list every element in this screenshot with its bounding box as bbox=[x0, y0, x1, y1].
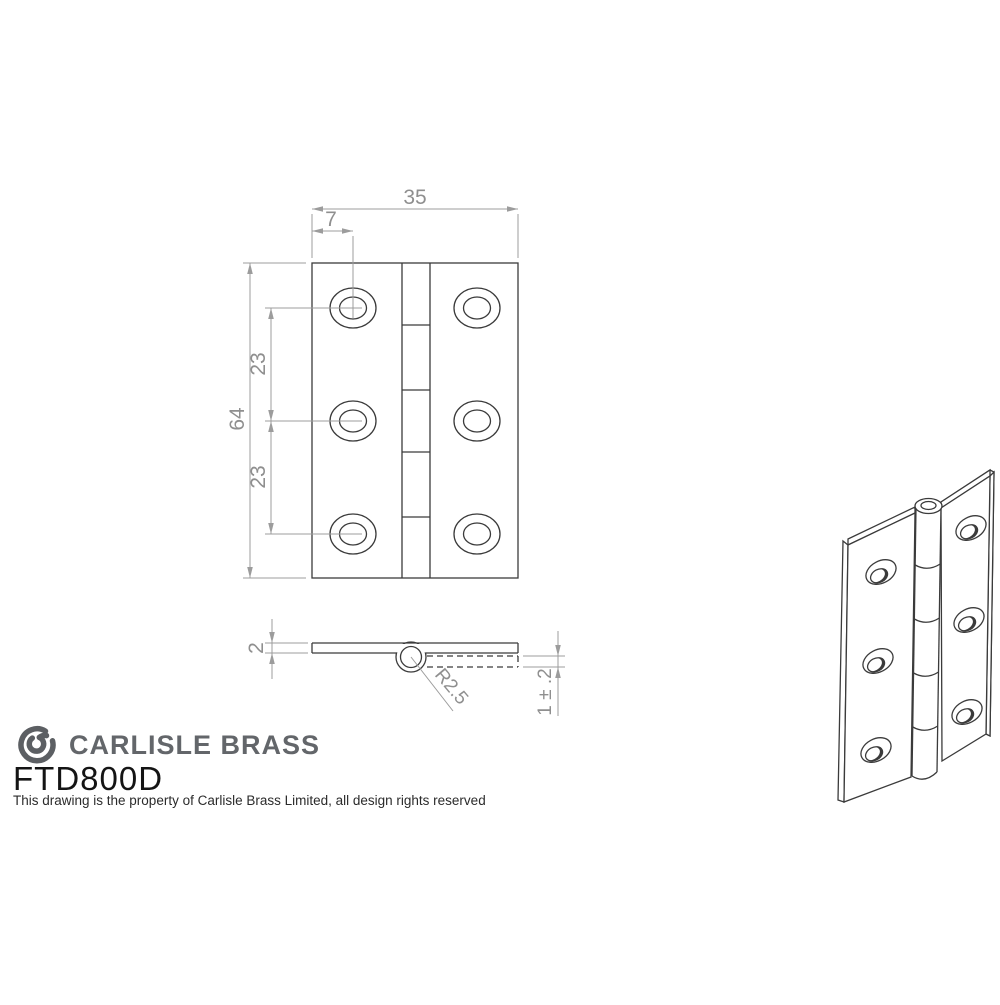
side-view: 2 R2.5 1 ± .2 bbox=[245, 619, 565, 716]
perspective-view bbox=[838, 470, 994, 802]
dim-thickness-label: 2 bbox=[245, 642, 268, 654]
folded-leaf-dashed bbox=[427, 656, 518, 667]
hinge-technical-drawing: 35 7 64 23 bbox=[0, 0, 1000, 1000]
dim-hole-offset-label: 7 bbox=[325, 208, 337, 231]
brand-name: CARLISLE BRASS bbox=[69, 730, 320, 761]
dimension-radius: R2.5 bbox=[411, 657, 472, 711]
dimension-thickness: 2 bbox=[245, 619, 308, 679]
dim-leaf-tolerance-label: 1 ± .2 bbox=[535, 668, 556, 715]
disclaimer-text: This drawing is the property of Carlisle… bbox=[13, 793, 486, 808]
dim-spacing-bottom-label: 23 bbox=[247, 465, 270, 488]
perspective-knuckle bbox=[912, 499, 942, 780]
dim-height-label: 64 bbox=[226, 407, 249, 431]
dimension-hole-spacing: 23 23 bbox=[247, 308, 362, 534]
knuckle-top-face bbox=[915, 499, 942, 514]
front-view: 35 7 64 23 bbox=[226, 186, 518, 578]
dim-width-label: 35 bbox=[403, 186, 426, 209]
dim-spacing-top-label: 23 bbox=[247, 352, 270, 375]
dimension-width: 35 bbox=[312, 186, 518, 258]
dimension-leaf-tolerance: 1 ± .2 bbox=[523, 631, 565, 716]
dim-radius-label: R2.5 bbox=[430, 665, 472, 709]
